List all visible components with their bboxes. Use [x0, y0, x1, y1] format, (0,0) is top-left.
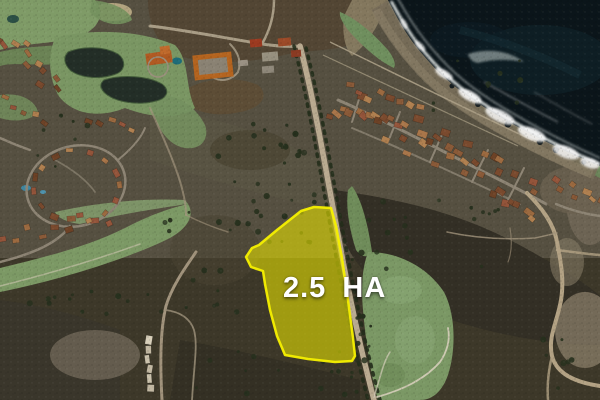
aerial-map[interactable]: 2.5 HA [0, 0, 600, 400]
aerial-photo [0, 0, 600, 400]
